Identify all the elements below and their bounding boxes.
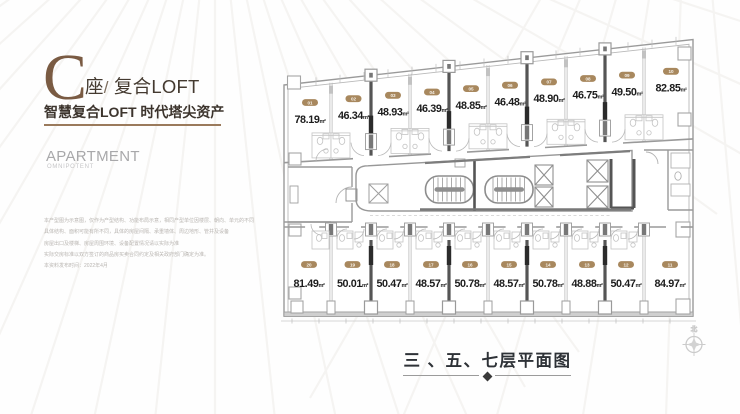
svg-text:01: 01 <box>307 100 313 105</box>
svg-text:16: 16 <box>467 262 473 267</box>
svg-text:18: 18 <box>389 262 395 267</box>
svg-text:04: 04 <box>429 90 435 95</box>
svg-text:02: 02 <box>351 97 357 102</box>
svg-text:17: 17 <box>428 262 434 267</box>
svg-text:14: 14 <box>545 262 551 267</box>
svg-text:11: 11 <box>668 262 673 267</box>
svg-text:05: 05 <box>468 86 474 91</box>
svg-text:北: 北 <box>691 325 698 333</box>
svg-text:10: 10 <box>668 69 674 74</box>
svg-text:06: 06 <box>507 83 513 88</box>
svg-text:20: 20 <box>306 262 312 267</box>
svg-text:08: 08 <box>585 76 591 81</box>
svg-text:07: 07 <box>546 80 552 85</box>
svg-text:12: 12 <box>623 262 629 267</box>
svg-text:19: 19 <box>350 262 356 267</box>
svg-text:03: 03 <box>390 93 396 98</box>
svg-text:09: 09 <box>624 73 630 78</box>
svg-text:13: 13 <box>584 262 590 267</box>
svg-text:15: 15 <box>506 262 512 267</box>
